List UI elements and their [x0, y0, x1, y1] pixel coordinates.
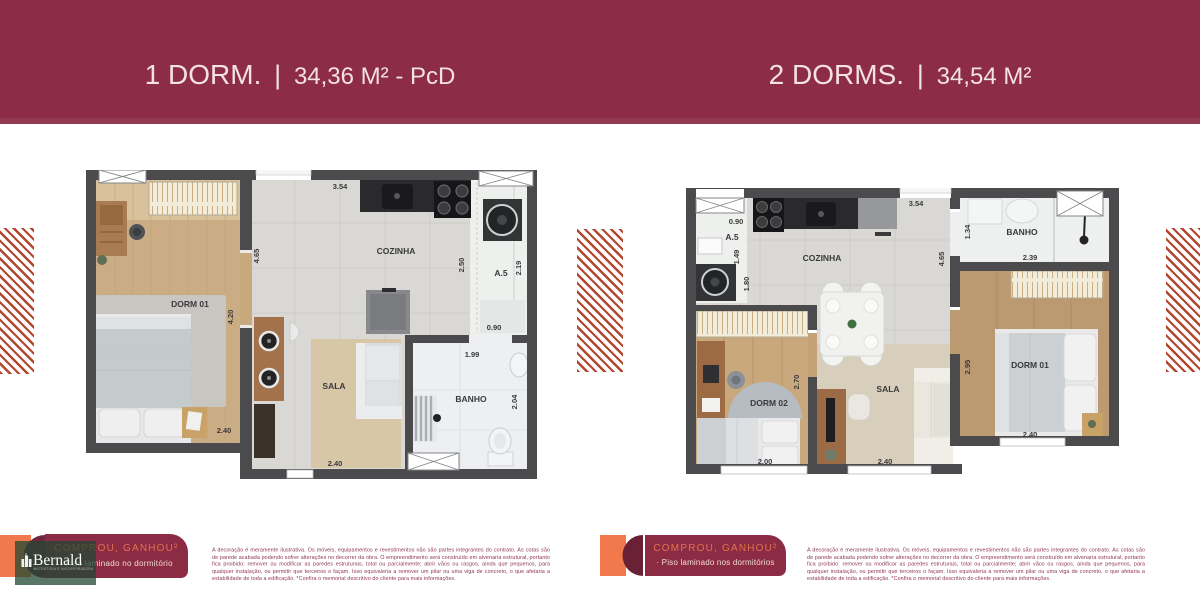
svg-text:2.40: 2.40	[217, 426, 232, 435]
svg-text:2.00: 2.00	[758, 457, 773, 466]
svg-text:SALA: SALA	[322, 381, 345, 391]
svg-text:4.20: 4.20	[226, 310, 235, 325]
svg-text:DORM 01: DORM 01	[1011, 360, 1049, 370]
svg-text:BANHO: BANHO	[1006, 227, 1038, 237]
svg-text:2.40: 2.40	[878, 457, 893, 466]
svg-text:CONSTRUTORA E INCORPORADORA: CONSTRUTORA E INCORPORADORA	[33, 567, 93, 571]
svg-text:A.5: A.5	[494, 268, 508, 278]
svg-text:0.90: 0.90	[729, 217, 744, 226]
svg-text:1.99: 1.99	[465, 350, 480, 359]
svg-text:COZINHA: COZINHA	[803, 253, 842, 263]
svg-text:2.95: 2.95	[963, 360, 972, 375]
svg-text:1.49: 1.49	[732, 250, 741, 265]
svg-text:1.80: 1.80	[742, 277, 751, 292]
svg-text:BANHO: BANHO	[455, 394, 487, 404]
svg-text:4.65: 4.65	[937, 252, 946, 267]
svg-text:SALA: SALA	[876, 384, 899, 394]
svg-text:3.54: 3.54	[909, 199, 924, 208]
svg-text:4.65: 4.65	[252, 249, 261, 264]
svg-text:3.54: 3.54	[333, 182, 348, 191]
svg-text:2.70: 2.70	[792, 375, 801, 390]
svg-text:DORM 02: DORM 02	[750, 398, 788, 408]
svg-text:COZINHA: COZINHA	[377, 246, 416, 256]
svg-text:2.40: 2.40	[1023, 430, 1038, 439]
svg-text:A.5: A.5	[725, 232, 739, 242]
svg-text:DORM 01: DORM 01	[171, 299, 209, 309]
svg-text:2.40: 2.40	[328, 459, 343, 468]
svg-text:2.19: 2.19	[514, 261, 523, 276]
svg-text:0.90: 0.90	[487, 323, 502, 332]
svg-text:2.04: 2.04	[510, 394, 519, 409]
svg-text:2.50: 2.50	[457, 258, 466, 273]
svg-text:1.34: 1.34	[963, 224, 972, 239]
svg-text:2.39: 2.39	[1023, 253, 1038, 262]
